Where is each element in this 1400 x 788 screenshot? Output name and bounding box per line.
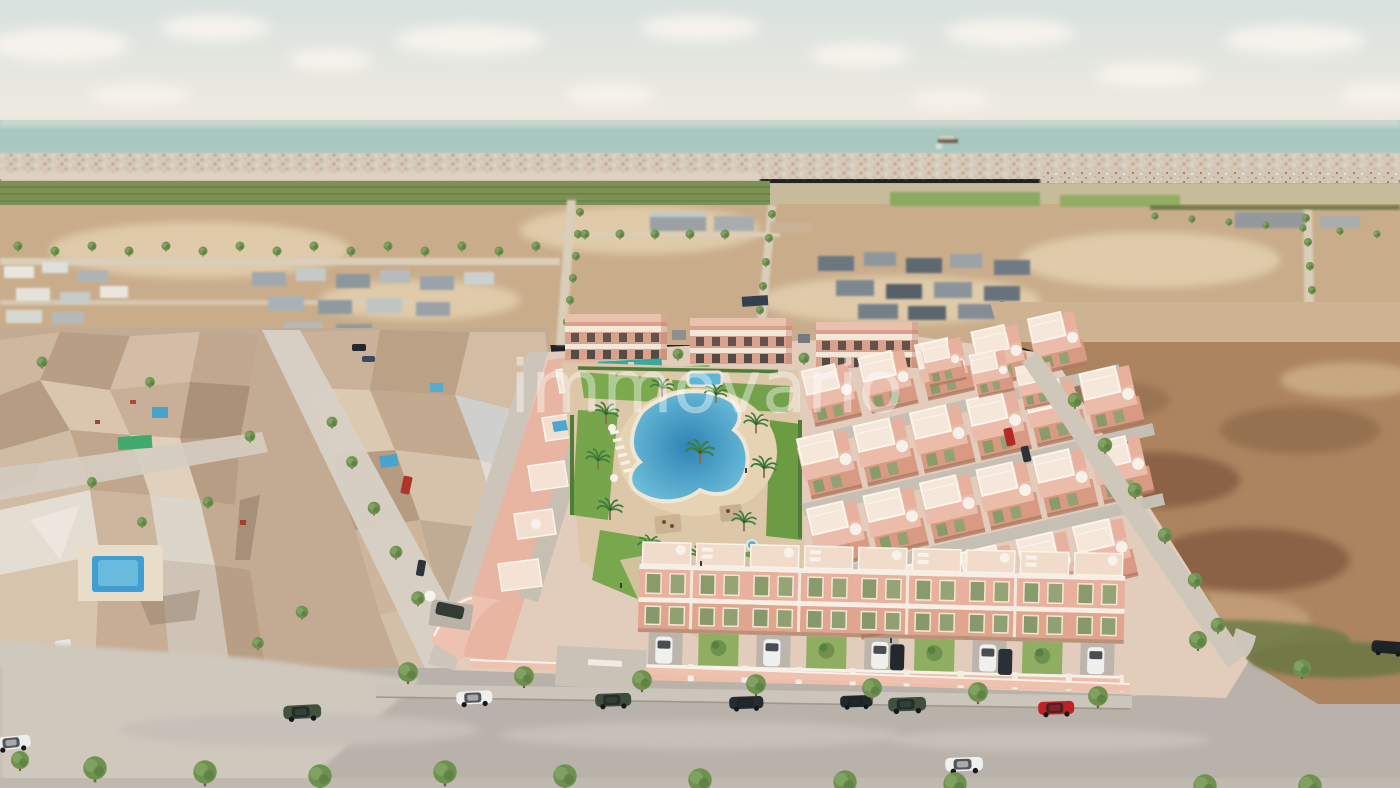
patio-umbrella — [425, 591, 436, 602]
driveway-car-black-2 — [998, 649, 1013, 675]
render-canvas: immovario — [0, 0, 1400, 788]
watermark: immovario — [510, 345, 904, 429]
sky — [0, 0, 1400, 132]
aerial-render-image: immovario — [0, 0, 1400, 788]
driveway-car-black — [890, 644, 905, 670]
